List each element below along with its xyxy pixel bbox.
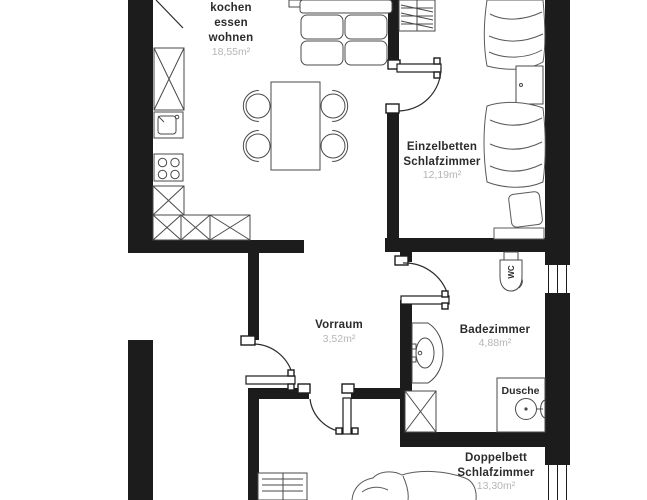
kitchen-counter-row-icon — [153, 215, 250, 240]
room-name-line: Einzelbetten — [407, 141, 477, 153]
wall-right-upper — [545, 0, 570, 265]
kitchen-counter — [153, 48, 250, 240]
room-area: 13,30m² — [477, 480, 516, 492]
wall-left-upper — [128, 0, 153, 253]
room-name-line: kochen — [210, 2, 251, 14]
room-name-line: Schlafzimmer — [457, 467, 535, 479]
wall-living-bottom — [128, 240, 304, 253]
floor-plan-canvas: WC Dusche kochen essen wohnen 18, — [0, 0, 647, 500]
room-label-single-bedroom: Einzelbetten Schlafzimmer 12,19m² — [403, 141, 481, 181]
room-area: 4,88m² — [479, 337, 512, 349]
wc-label: WC — [507, 265, 516, 279]
window-right-upper — [545, 265, 570, 293]
room-area: 12,19m² — [423, 169, 462, 181]
radiator-icon — [258, 473, 307, 500]
wardrobe-icon — [399, 0, 435, 31]
dining-chair — [321, 131, 348, 162]
kitchen-cabinet-icon — [154, 48, 184, 110]
floor-plan: WC Dusche kochen essen wohnen 18, — [0, 0, 647, 500]
room-area: 3,52m² — [323, 333, 356, 345]
room-label-double-bedroom: Doppelbett Schlafzimmer 13,30m² — [457, 452, 535, 492]
door-bathroom — [395, 256, 449, 309]
wall-left-lower — [128, 340, 153, 500]
kitchen-sink-icon — [154, 112, 183, 138]
door-hallway-left — [241, 336, 295, 390]
wall-divider-lower — [387, 108, 399, 240]
sofa — [289, 0, 392, 65]
wall-right-mid — [545, 293, 570, 465]
wall-hall-left-up — [248, 253, 259, 340]
door-double-bedroom — [298, 384, 358, 434]
room-label-bathroom: Badezimmer 4,88m² — [460, 324, 531, 349]
door-top-entry — [156, 0, 183, 28]
room-area: 18,55m² — [212, 46, 251, 58]
room-name-line: Vorraum — [315, 319, 363, 331]
dining-table — [271, 82, 320, 170]
dining-chair — [243, 131, 270, 162]
washing-machine-icon — [405, 391, 436, 432]
stove-icon — [154, 154, 183, 181]
room-name-line: Doppelbett — [465, 452, 527, 464]
dining-chair — [243, 91, 270, 122]
window-right-lower — [545, 465, 570, 500]
wall-bath-bottom — [400, 432, 547, 447]
wall-hall-left-low — [248, 388, 259, 500]
single-bed — [484, 0, 545, 69]
door-single-bedroom — [386, 58, 441, 113]
room-name-line: Badezimmer — [460, 324, 531, 336]
washbasin-icon — [412, 323, 443, 383]
room-label-hallway: Vorraum 3,52m² — [315, 319, 363, 345]
dining-chair — [321, 91, 348, 122]
shower-label: Dusche — [502, 385, 540, 397]
room-name-line: essen — [214, 17, 248, 29]
wall-mid-right — [385, 238, 570, 252]
room-name-line: wohnen — [208, 32, 254, 44]
single-bed — [484, 102, 545, 239]
room-name-line: Schlafzimmer — [403, 156, 481, 168]
kitchen-cabinet-icon — [153, 186, 184, 215]
room-label-living: kochen essen wohnen 18,55m² — [208, 2, 254, 58]
nightstand — [516, 66, 543, 104]
